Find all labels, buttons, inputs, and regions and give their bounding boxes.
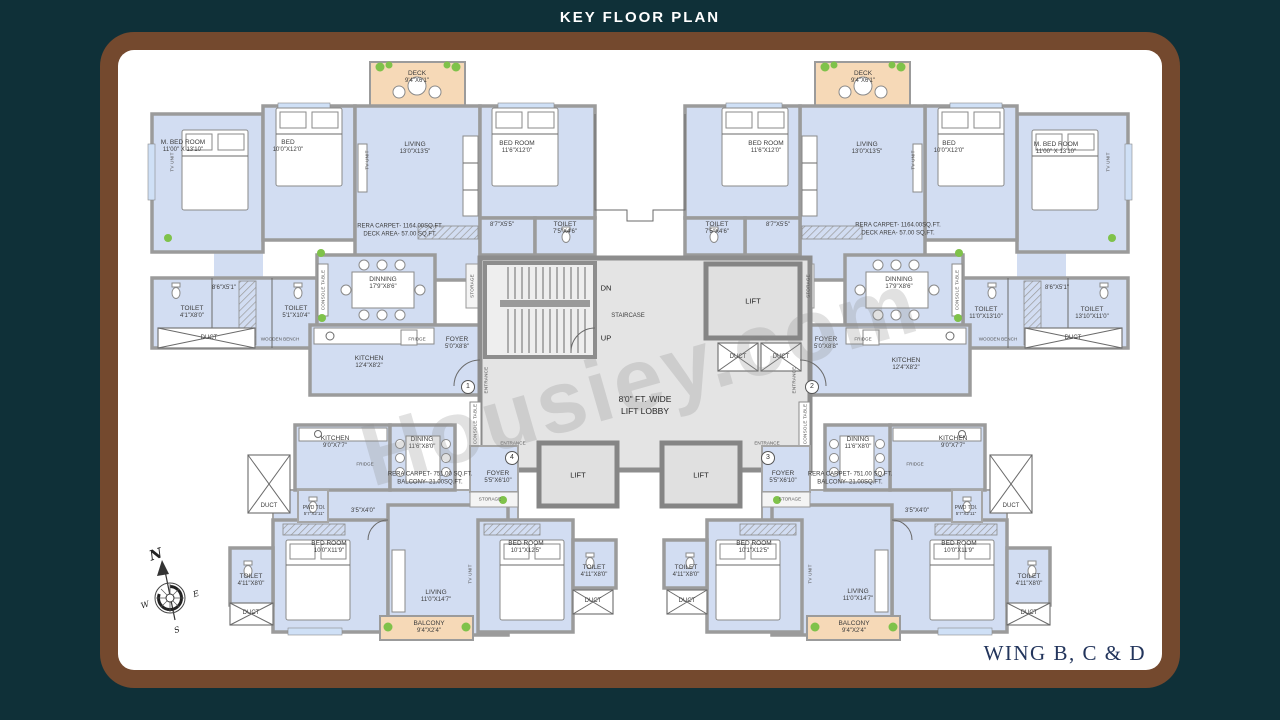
rera-line: RERA CARPET- 751.00 SQ.FT. [388, 472, 472, 480]
room-label-foyer-br: FOYER5'5"X6'10" [769, 470, 796, 486]
room-label-toilet-br1: TOILET4'11"X8'0" [673, 564, 700, 580]
room-label-bed-room-b-br: BED ROOM10'1"X12'5" [736, 540, 771, 556]
room-label-balcony-bl: BALCONY9'4"X2'4" [413, 620, 444, 636]
lobby-line: 8'0" FT. WIDE [619, 394, 672, 406]
room-dim: 13'0"X13'5" [400, 149, 431, 157]
room-dim: 7'5"X4'6" [553, 229, 577, 237]
storage-label-bl: STORAGE [479, 497, 501, 502]
room-dim: 11'6"X12'0" [499, 148, 534, 156]
room-name: TOILET [238, 573, 265, 581]
room-name: TOILET [969, 306, 1002, 314]
console-table-label-lobby-right: CONSOLE TABLE [803, 404, 808, 444]
room-label-bed-left: BED10'0"X12'0" [273, 139, 304, 155]
room-label-kitchen-right: KITCHEN12'4"X8'2" [892, 357, 921, 373]
room-label-living-bl: LIVING11'0"X14'7" [421, 589, 451, 605]
room-name: DINNING [369, 276, 396, 284]
room-dim: 11'0"X14'7" [843, 596, 873, 604]
room-name: KITCHEN [321, 435, 350, 443]
room-dim: 12'4"X8'2" [355, 363, 384, 371]
room-name: TOILET [553, 221, 577, 229]
room-label-bed-room-a-bl: BED ROOM10'0"X11'9" [311, 540, 346, 556]
storage-label-tr: STORAGE [806, 274, 811, 298]
passage-dim-left: 8'7"X5'5" [490, 222, 514, 228]
room-label-toilet-e-right: TOILET13'10"X11'0" [1075, 306, 1108, 322]
room-name: KITCHEN [939, 435, 968, 443]
storage-label-tl: STORAGE [470, 274, 475, 298]
page-title: KEY FLOOR PLAN [0, 9, 1280, 26]
room-name: BALCONY [413, 620, 444, 628]
passage-dim-br: 3'5"X4'0" [905, 508, 929, 514]
room-dim: 11'6"X8'0" [409, 444, 436, 452]
tv-unit-label-6: TV UNIT [808, 564, 813, 583]
rera-note-top-left: RERA CARPET- 1164.00SQ.FT.DECK AREA- 57.… [357, 224, 443, 239]
room-dim: 5'5"X6'10" [769, 478, 796, 486]
room-label-bed-room-a-br: BED ROOM10'0"X11'9" [941, 540, 976, 556]
room-dim: 12'4"X8'2" [892, 365, 921, 373]
console-table-label-lobby-left: CONSOLE TABLE [473, 404, 478, 444]
lift-top-label: LIFT [745, 297, 760, 306]
rera-line: RERA CARPET- 1164.00SQ.FT. [855, 223, 941, 231]
room-dim: 11'6"X12'0" [748, 148, 783, 156]
room-dim: 4'11"X8'0" [238, 581, 265, 589]
room-label-toilet-bl1: TOILET4'11"X8'0" [238, 573, 265, 589]
stair-dn-label: DN [601, 284, 612, 293]
room-label-dining-br: DINING11'6"X8'0" [845, 436, 872, 452]
room-name: BED [273, 139, 304, 147]
rera-note-bottom-right: RERA CARPET- 751.00 SQ.FT.BALCONY- 21.00… [808, 472, 892, 487]
room-name: BED ROOM [508, 540, 543, 548]
lift-lobby-label: 8'0" FT. WIDELIFT LOBBY [619, 394, 672, 418]
duct-lower-left-x-label: DUCT [261, 503, 278, 509]
wing-title: WING B, C & D [984, 641, 1146, 666]
tv-unit-label-1: TV UNIT [170, 152, 175, 171]
room-dim: 17'9"X8'6" [885, 284, 912, 292]
wooden-bench-label-right: WOODEN BENCH [979, 337, 1018, 342]
room-label-toilet-bl2: TOILET4'11"X8'0" [581, 564, 608, 580]
room-dim: 5'7"X2'11" [955, 511, 978, 517]
room-name: FOYER [769, 470, 796, 478]
entry-number-3: 3 [761, 451, 775, 465]
entrance-2-label: ENTRANCE [792, 367, 797, 394]
room-label-toilet-a-left: TOILET7'5"X4'6" [553, 221, 577, 237]
room-label-pwd-br: PWD TOI.5'7"X2'11" [955, 505, 978, 517]
rera-line: RERA CARPET- 751.00 SQ.FT. [808, 472, 892, 480]
passage-dim-right: 8'7"X5'5" [766, 222, 790, 228]
room-name: FOYER [445, 336, 469, 344]
room-label-pwd-bl: PWD TOI.5'7"X2'11" [303, 505, 326, 517]
duct-core-1-label: DUCT [730, 354, 747, 360]
room-name: M. BED ROOM [1034, 141, 1078, 149]
duct-lower-right-3-label: DUCT [679, 598, 696, 604]
entrance-3-label: ENTRANCE [754, 441, 779, 446]
rera-note-top-right: RERA CARPET- 1164.00SQ.FT.DECK AREA- 57.… [855, 223, 941, 238]
passage-dim-bl: 3'5"X4'0" [351, 508, 375, 514]
room-dim: 9'4"X6'1" [851, 78, 875, 86]
room-name: KITCHEN [892, 357, 921, 365]
passage-dim-left-2: 8'6"X5'1" [212, 285, 236, 291]
plan-canvas: .rm{fill:#d2ddf2;stroke:#9b9b9b;stroke-w… [118, 50, 1162, 670]
room-dim: 11'0"X13'10" [969, 314, 1002, 322]
room-dim: 11'00" X 13'10" [1034, 149, 1078, 157]
room-label-kitchen-bl: KITCHEN9'0"X7'7" [321, 435, 350, 451]
plan-frame: .rm{fill:#d2ddf2;stroke:#9b9b9b;stroke-w… [100, 32, 1180, 688]
rera-line: DECK AREA- 57.00 SQ.FT. [855, 230, 941, 238]
room-label-dining-bl: DINING11'6"X8'0" [409, 436, 436, 452]
room-dim: 9'0"X7'7" [321, 443, 350, 451]
stair-up-label: UP [601, 334, 611, 343]
passage-dim-right-2: 8'6"X5'1" [1045, 285, 1069, 291]
entry-number-1: 1 [461, 380, 475, 394]
room-name: TOILET [282, 305, 309, 313]
tv-unit-label-5: TV UNIT [468, 564, 473, 583]
room-name: DINING [409, 436, 436, 444]
entry-number-4: 4 [505, 451, 519, 465]
room-label-m-bed-room-left: M. BED ROOM11'00" X 13'10" [161, 139, 205, 155]
room-label-dinning-left: DINNING17'9"X8'6" [369, 276, 396, 292]
fridge-label-br: FRIDGE [906, 462, 923, 467]
room-name: DINING [845, 436, 872, 444]
rera-line: BALCONY- 21.00SQ.FT. [388, 479, 472, 487]
room-name: BALCONY [838, 620, 869, 628]
room-label-toilet-a-right: TOILET7'5"X4'6" [705, 221, 729, 237]
room-name: BED ROOM [499, 140, 534, 148]
room-label-living-right: LIVING13'0"X13'5" [852, 141, 883, 157]
fridge-label-tl: FRIDGE [408, 337, 425, 342]
room-name: LIVING [852, 141, 883, 149]
room-dim: 11'0"X14'7" [421, 597, 451, 605]
duct-lower-right-2-label: DUCT [1021, 610, 1038, 616]
room-name: BED ROOM [736, 540, 771, 548]
room-label-kitchen-br: KITCHEN9'0"X7'7" [939, 435, 968, 451]
room-name: TOILET [705, 221, 729, 229]
room-name: FOYER [814, 336, 838, 344]
room-name: BED [934, 140, 965, 148]
room-name: TOILET [180, 305, 204, 313]
room-label-living-br: LIVING11'0"X14'7" [843, 588, 873, 604]
room-name: FOYER [484, 470, 511, 478]
room-label-toilet-b-left: TOILET4'1"X8'0" [180, 305, 204, 321]
console-table-label-left: CONSOLE TABLE [321, 270, 326, 310]
wing-gap-outline [595, 114, 685, 221]
room-name: TOILET [581, 564, 608, 572]
room-label-bed-right: BED10'0"X12'0" [934, 140, 965, 156]
room-dim: 4'11"X8'0" [1016, 581, 1043, 589]
room-name: LIVING [400, 141, 431, 149]
duct-lower-left-3-label: DUCT [585, 598, 602, 604]
room-dim: 17'9"X8'6" [369, 284, 396, 292]
staircase-label: STAIRCASE [611, 313, 645, 319]
room-name: TOILET [1075, 306, 1108, 314]
room-dim: 9'4"X2'4" [413, 628, 444, 636]
tv-unit-label-3: TV UNIT [911, 150, 916, 169]
room-dim: 10'0"X12'0" [934, 148, 965, 156]
room-label-toilet-br2: TOILET4'11"X8'0" [1016, 573, 1043, 589]
room-label-bed-room-right: BED ROOM11'6"X12'0" [748, 140, 783, 156]
room-dim: 9'4"X2'4" [838, 628, 869, 636]
room-label-kitchen-left: KITCHEN12'4"X8'2" [355, 355, 384, 371]
room-name: M. BED ROOM [161, 139, 205, 147]
fridge-label-tr: FRIDGE [854, 337, 871, 342]
room-dim: 5'1"X10'4" [282, 313, 309, 321]
room-dim: 13'0"X13'5" [852, 149, 883, 157]
tv-unit-label-4: TV UNIT [1106, 152, 1111, 171]
duct-upper-right-label: DUCT [1065, 335, 1082, 341]
room-name: BED ROOM [748, 140, 783, 148]
room-label-bed-room-left: BED ROOM11'6"X12'0" [499, 140, 534, 156]
room-label-toilet-c-left: TOILET5'1"X10'4" [282, 305, 309, 321]
room-name: TOILET [673, 564, 700, 572]
entrance-1-label: ENTRANCE [484, 367, 489, 394]
room-label-m-bed-room-right: M. BED ROOM11'00" X 13'10" [1034, 141, 1078, 157]
room-name: TOILET [1016, 573, 1043, 581]
entrance-4-label: ENTRANCE [500, 441, 525, 446]
room-dim: 9'0"X7'7" [939, 443, 968, 451]
room-label-deck-right: DECK9'4"X6'1" [851, 70, 875, 86]
room-name: DECK [851, 70, 875, 78]
room-name: KITCHEN [355, 355, 384, 363]
storage-label-br: STORAGE [779, 497, 801, 502]
room-name: LIVING [843, 588, 873, 596]
duct-upper-left-label: DUCT [201, 335, 218, 341]
console-table-label-right: CONSOLE TABLE [955, 270, 960, 310]
room-dim: 13'10"X11'0" [1075, 314, 1108, 322]
room-name: DECK [405, 70, 429, 78]
room-dim: 5'7"X2'11" [303, 511, 326, 517]
room-label-foyer-left: FOYER5'0"X8'8" [445, 336, 469, 352]
room-name: BED ROOM [311, 540, 346, 548]
room-label-toilet-d-right: TOILET11'0"X13'10" [969, 306, 1002, 322]
room-dim: 10'1"X12'5" [508, 548, 543, 556]
rera-line: BALCONY- 21.00SQ.FT. [808, 479, 892, 487]
room-dim: 10'0"X11'9" [941, 548, 976, 556]
room-dim: 10'0"X11'9" [311, 548, 346, 556]
room-dim: 10'0"X12'0" [273, 147, 304, 155]
lift-bottom-left-label: LIFT [570, 471, 585, 480]
compass-rose [155, 560, 185, 620]
room-label-foyer-right: FOYER5'0"X8'8" [814, 336, 838, 352]
room-name: LIVING [421, 589, 451, 597]
room-name: DINNING [885, 276, 912, 284]
page: { "title": "KEY FLOOR PLAN", "wing": "WI… [0, 0, 1280, 720]
room-dim: 4'1"X8'0" [180, 313, 204, 321]
lift-bottom-right-label: LIFT [693, 471, 708, 480]
duct-core-2-label: DUCT [773, 354, 790, 360]
duct-lower-right-x-label: DUCT [1003, 503, 1020, 509]
room-dim: 5'0"X8'8" [814, 344, 838, 352]
room-dim: 7'5"X4'6" [705, 229, 729, 237]
tv-unit-label-2: TV UNIT [365, 150, 370, 169]
rera-note-bottom-left: RERA CARPET- 751.00 SQ.FT.BALCONY- 21.00… [388, 472, 472, 487]
entry-number-2: 2 [805, 380, 819, 394]
room-label-balcony-br: BALCONY9'4"X2'4" [838, 620, 869, 636]
room-dim: 4'11"X8'0" [581, 572, 608, 580]
room-dim: 9'4"X6'1" [405, 78, 429, 86]
room-dim: 5'5"X6'10" [484, 478, 511, 486]
lobby-line: LIFT LOBBY [619, 406, 672, 418]
wooden-bench-label-left: WOODEN BENCH [261, 337, 300, 342]
room-label-living-left: LIVING13'0"X13'5" [400, 141, 431, 157]
room-dim: 11'00" X 13'10" [161, 147, 205, 155]
room-dim: 4'11"X8'0" [673, 572, 700, 580]
rera-line: DECK AREA- 57.00 SQ.FT. [357, 231, 443, 239]
room-dim: 5'0"X8'8" [445, 344, 469, 352]
duct-lower-left-2-label: DUCT [243, 610, 260, 616]
room-label-dinning-right: DINNING17'9"X8'6" [885, 276, 912, 292]
room-dim: 10'1"X12'5" [736, 548, 771, 556]
room-label-deck-left: DECK9'4"X6'1" [405, 70, 429, 86]
room-label-bed-room-b-bl: BED ROOM10'1"X12'5" [508, 540, 543, 556]
room-dim: 11'6"X8'0" [845, 444, 872, 452]
room-name: BED ROOM [941, 540, 976, 548]
fridge-label-bl: FRIDGE [356, 462, 373, 467]
rera-line: RERA CARPET- 1164.00SQ.FT. [357, 224, 443, 232]
room-label-foyer-bl: FOYER5'5"X6'10" [484, 470, 511, 486]
